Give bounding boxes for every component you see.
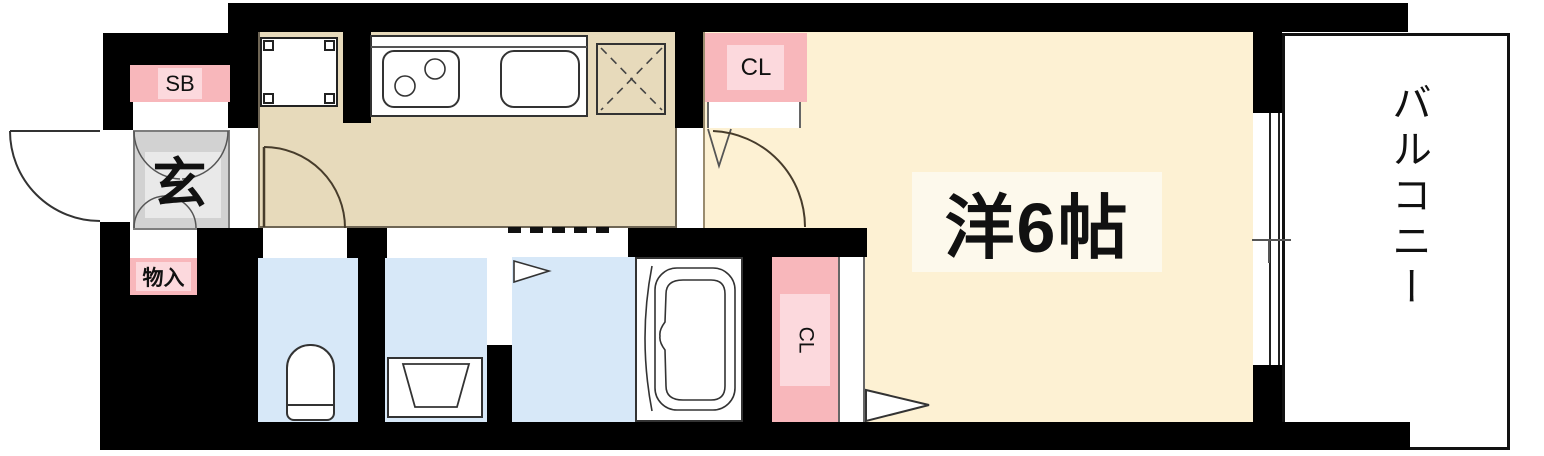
shoe-box-label: SB bbox=[130, 65, 230, 102]
wall-window-bottom bbox=[1253, 365, 1282, 422]
balcony-window bbox=[1270, 113, 1279, 365]
storage-label-text: 物入 bbox=[143, 262, 185, 292]
closet-lower-door-strip bbox=[838, 257, 865, 422]
toilet-bowl bbox=[286, 344, 335, 421]
wall-toilet-washroom-divider bbox=[358, 258, 385, 422]
wall-band-bath-closet bbox=[628, 228, 867, 257]
balcony-label-text: バルコニー bbox=[1379, 82, 1437, 312]
toilet-seat-line bbox=[288, 404, 333, 406]
shoe-box-door-strip bbox=[133, 102, 228, 130]
wall-genkan-right-column bbox=[228, 3, 258, 128]
main-room-label-text: 洋6帖 bbox=[945, 172, 1130, 273]
stove bbox=[382, 50, 460, 108]
entrance-door-swing-arc bbox=[10, 131, 100, 221]
washer-pan-corner-tl bbox=[263, 40, 274, 51]
main-room-label: 洋6帖 bbox=[912, 172, 1162, 272]
entrance-label: 玄 bbox=[133, 130, 226, 226]
closet-upper-label-text: CL bbox=[741, 54, 772, 82]
kitchen-counter-edge-line bbox=[371, 46, 587, 48]
storage-label: 物入 bbox=[130, 258, 197, 295]
washer-pan-corner-bl bbox=[263, 93, 274, 104]
closet-upper-label: CL bbox=[705, 33, 807, 102]
refrigerator-space bbox=[596, 43, 666, 115]
wall-tub-closet-divider bbox=[743, 257, 772, 422]
washer-pan-corner-tr bbox=[324, 40, 335, 51]
balcony-label: バルコニー bbox=[1382, 82, 1434, 382]
washbasin-cabinet bbox=[387, 357, 483, 418]
closet-upper-door-strip bbox=[707, 102, 801, 128]
bathroom-floor bbox=[512, 257, 635, 422]
floor-plan: SB 玄 物入 CL CL 洋6帖 バルコニー bbox=[0, 0, 1544, 456]
wall-kitchen-divider bbox=[343, 3, 371, 123]
washer-pan-corner-br bbox=[324, 93, 335, 104]
wall-bottom-main bbox=[100, 422, 1410, 450]
bathtub-unit bbox=[635, 257, 743, 422]
wall-left-upper bbox=[103, 33, 133, 130]
sink bbox=[500, 50, 580, 108]
shoe-box-label-text: SB bbox=[165, 71, 194, 97]
closet-lower-label-text: CL bbox=[793, 326, 817, 353]
wall-window-top bbox=[1253, 32, 1282, 113]
wall-below-bath-door bbox=[487, 345, 512, 422]
wall-top-main bbox=[230, 3, 1408, 32]
entrance-label-text: 玄 bbox=[153, 139, 207, 218]
wall-band-genkan bbox=[197, 228, 263, 258]
wall-left-lower bbox=[100, 222, 130, 450]
closet-lower-label: CL bbox=[772, 257, 838, 422]
wall-band-toilet-washroom bbox=[347, 228, 387, 258]
wall-kitchen-room-column bbox=[675, 3, 703, 128]
